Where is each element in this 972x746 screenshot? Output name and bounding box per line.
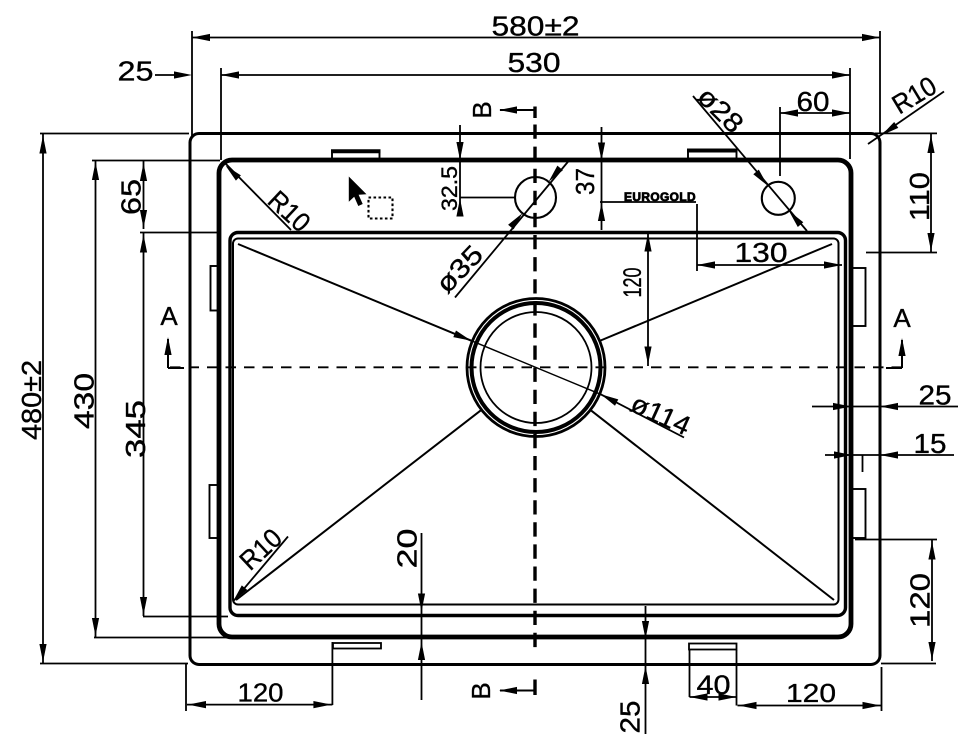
svg-text:120: 120 xyxy=(786,678,836,708)
svg-text:25: 25 xyxy=(919,380,952,411)
svg-text:A: A xyxy=(160,301,178,331)
svg-text:60: 60 xyxy=(797,86,830,117)
svg-text:580±2: 580±2 xyxy=(492,11,580,42)
svg-text:EUROGOLD: EUROGOLD xyxy=(624,190,696,204)
svg-text:530: 530 xyxy=(508,47,561,78)
svg-text:130: 130 xyxy=(735,237,788,268)
svg-text:480±2: 480±2 xyxy=(16,360,47,440)
svg-text:120: 120 xyxy=(238,678,284,708)
svg-text:37: 37 xyxy=(570,168,600,195)
svg-text:A: A xyxy=(893,303,911,333)
svg-text:65: 65 xyxy=(116,179,147,215)
svg-text:345: 345 xyxy=(120,400,151,458)
svg-text:120: 120 xyxy=(619,268,647,298)
svg-text:32.5: 32.5 xyxy=(437,166,462,211)
svg-text:40: 40 xyxy=(697,670,731,700)
svg-text:20: 20 xyxy=(392,529,423,569)
svg-text:430: 430 xyxy=(69,373,100,429)
svg-text:25: 25 xyxy=(118,56,154,87)
svg-text:B: B xyxy=(466,682,496,699)
svg-text:120: 120 xyxy=(905,573,936,628)
svg-text:B: B xyxy=(467,101,497,118)
svg-text:110: 110 xyxy=(904,172,935,221)
svg-text:15: 15 xyxy=(914,428,947,459)
svg-text:25: 25 xyxy=(615,701,646,734)
